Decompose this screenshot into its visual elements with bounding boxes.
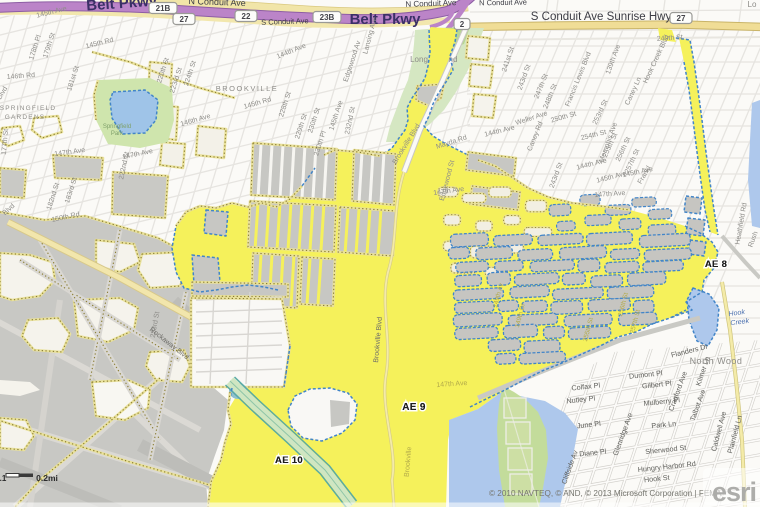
svg-text:23B: 23B bbox=[320, 13, 335, 22]
svg-text:S Conduit Ave Sunrise Hwy: S Conduit Ave Sunrise Hwy bbox=[531, 11, 672, 23]
svg-text:21B: 21B bbox=[156, 4, 171, 13]
svg-text:0.2mi: 0.2mi bbox=[36, 473, 58, 483]
svg-text:.1: .1 bbox=[0, 474, 7, 483]
svg-text:S Conduit Ave: S Conduit Ave bbox=[261, 16, 309, 27]
svg-text:North Wood: North Wood bbox=[690, 356, 743, 366]
svg-text:© 2010 NAVTEQ, © AND, © 2013 M: © 2010 NAVTEQ, © AND, © 2013 Microsoft C… bbox=[489, 489, 722, 498]
svg-text:2: 2 bbox=[460, 20, 465, 29]
svg-text:Park: Park bbox=[111, 131, 124, 137]
svg-text:Springfield: Springfield bbox=[103, 124, 131, 130]
svg-text:SPRINGFIELD: SPRINGFIELD bbox=[0, 105, 56, 112]
svg-text:GARDENS: GARDENS bbox=[5, 114, 46, 121]
svg-text:27: 27 bbox=[677, 14, 686, 23]
svg-text:Long: Long bbox=[410, 55, 428, 64]
svg-text:Lo: Lo bbox=[748, 0, 757, 9]
svg-text:nd: nd bbox=[449, 55, 458, 64]
svg-text:22: 22 bbox=[242, 12, 251, 21]
svg-text:AE 10: AE 10 bbox=[275, 455, 303, 466]
svg-text:Belt Pkwy: Belt Pkwy bbox=[350, 11, 422, 28]
svg-text:AE 8: AE 8 bbox=[705, 259, 727, 270]
svg-text:AE 9: AE 9 bbox=[402, 402, 426, 413]
svg-text:N Conduit Ave: N Conduit Ave bbox=[479, 0, 527, 7]
svg-text:BROOKVILLE: BROOKVILLE bbox=[216, 84, 279, 93]
svg-text:27: 27 bbox=[180, 15, 189, 24]
